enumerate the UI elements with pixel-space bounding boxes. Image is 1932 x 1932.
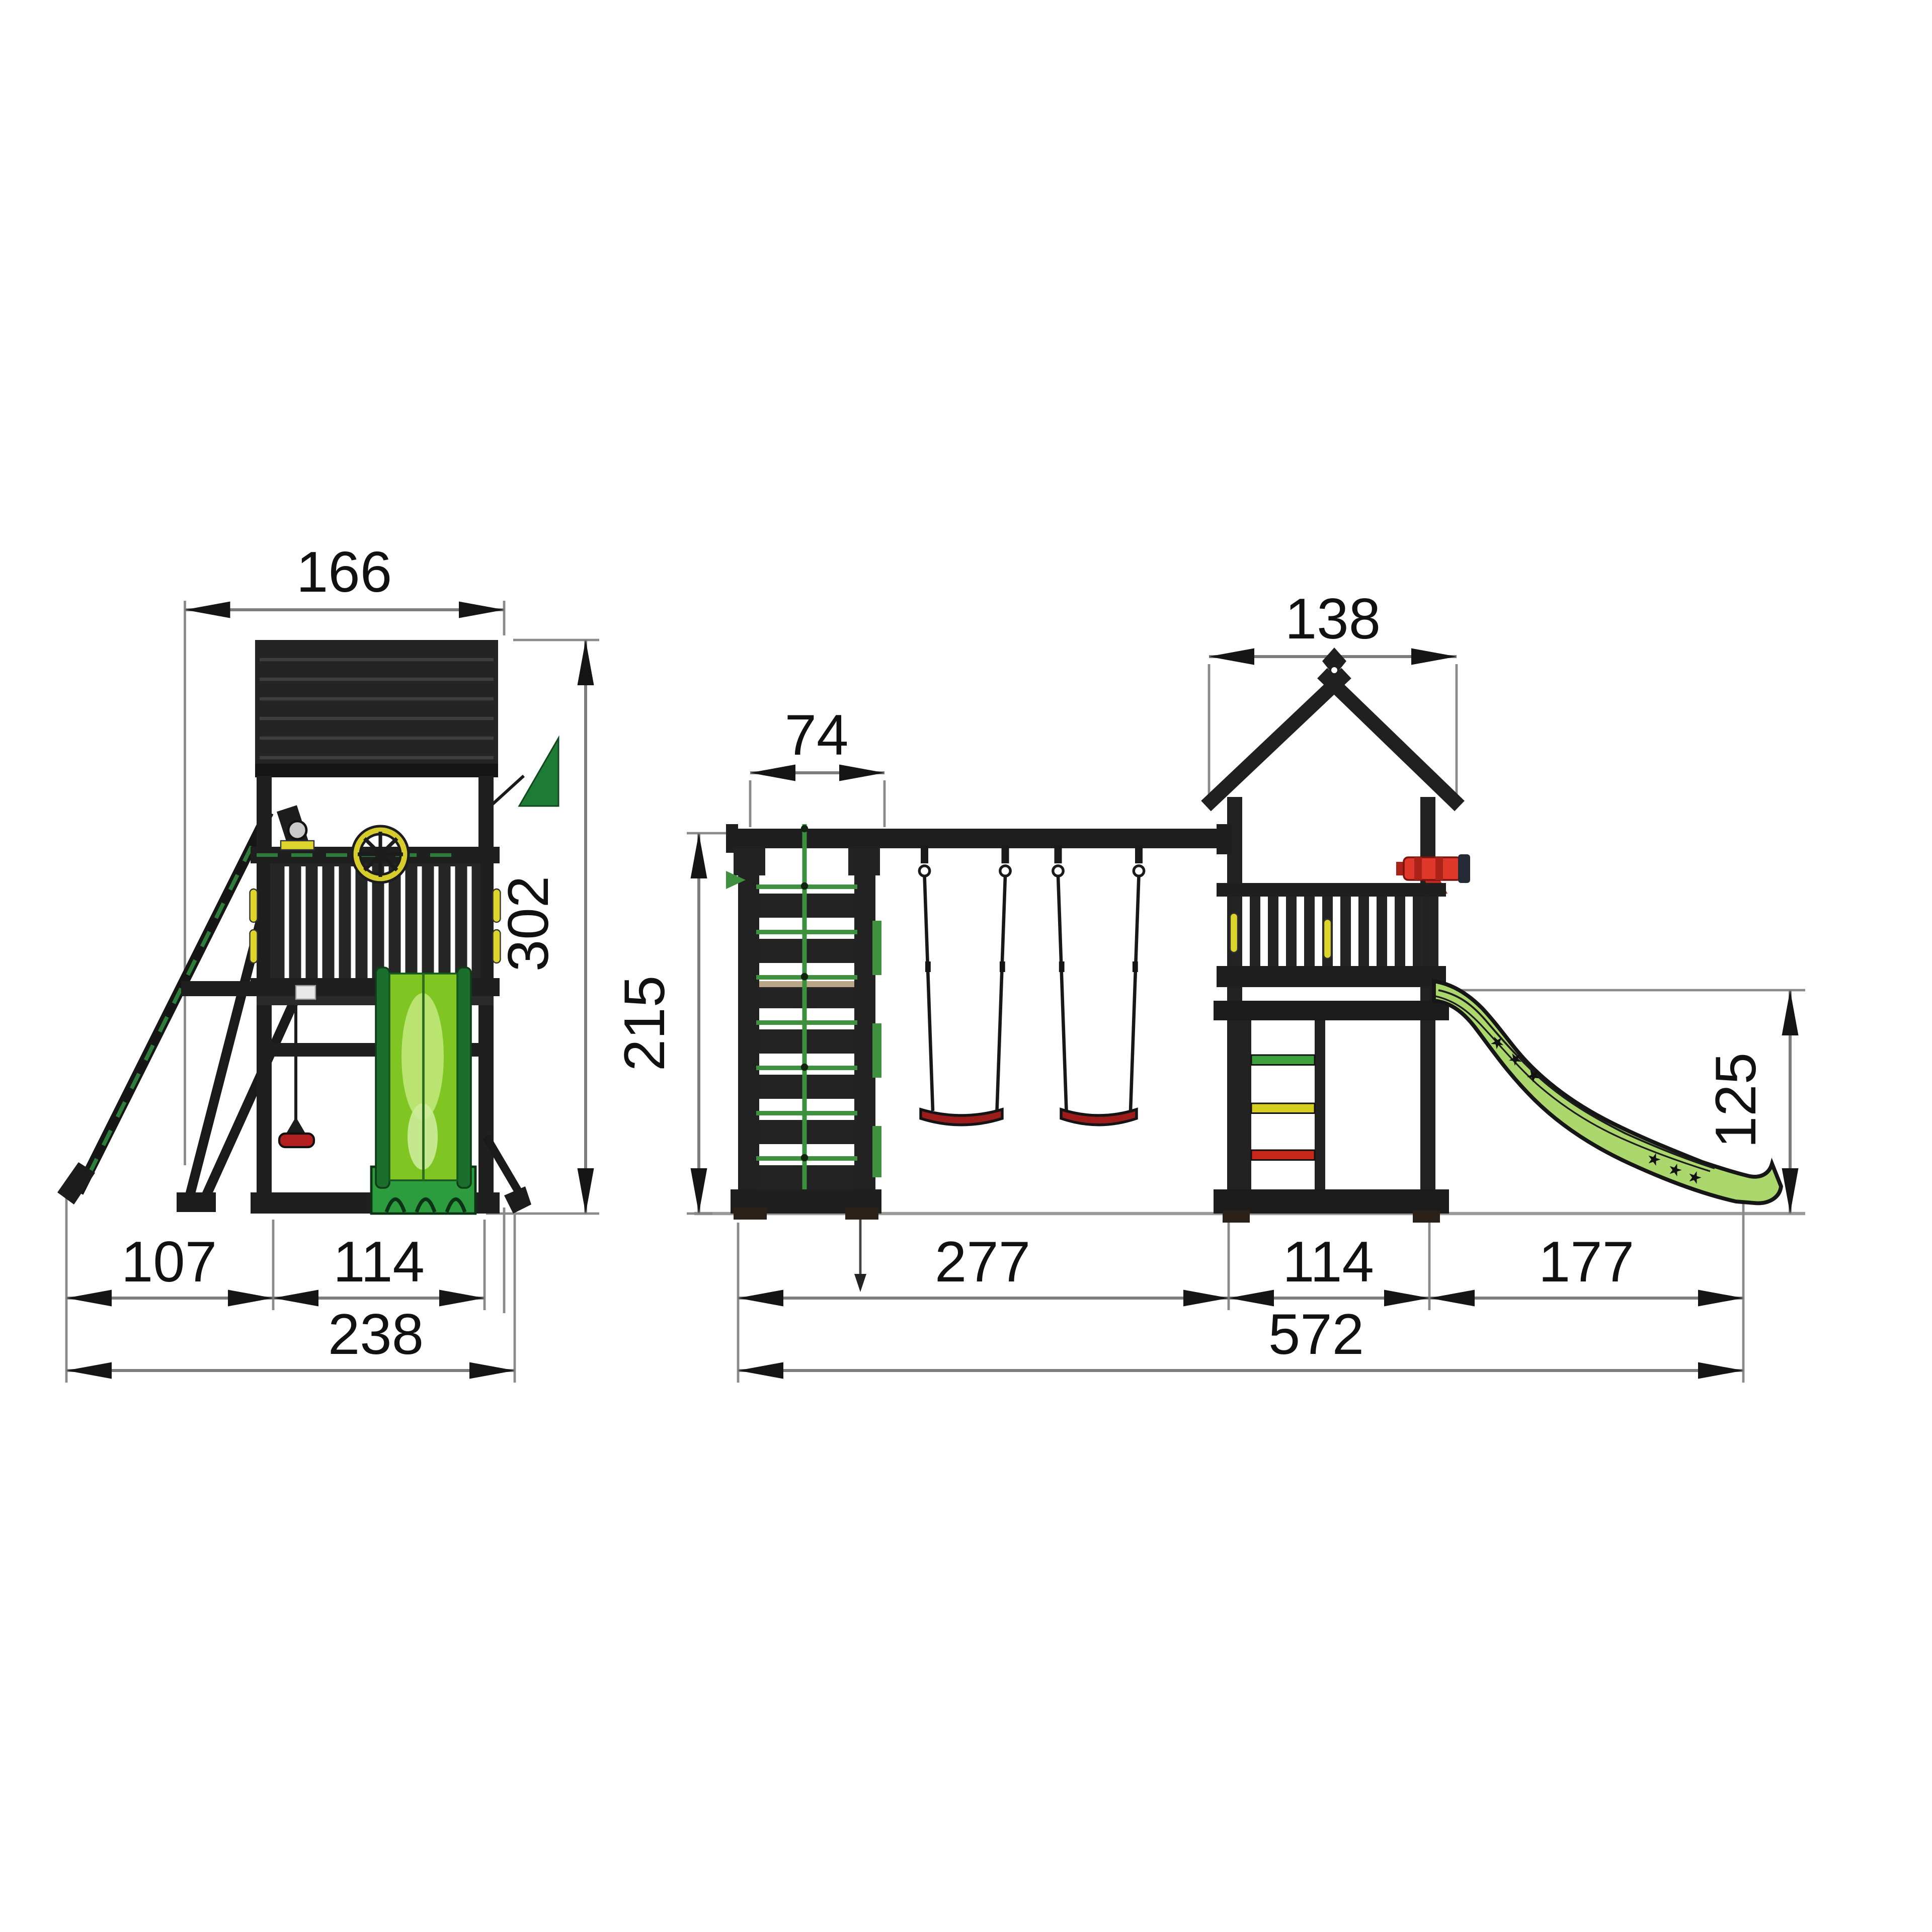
- side-view: 166 302: [57, 540, 599, 1383]
- steering-wheel-icon: [356, 830, 405, 878]
- diagram-canvas: 166 302: [0, 0, 1932, 1932]
- ladder-rung-green: [1251, 1055, 1315, 1065]
- front-dim-frame-width: 74: [750, 703, 884, 781]
- railing-handle: [1324, 919, 1331, 958]
- dim-138: 138: [1285, 587, 1381, 651]
- ladder-rung-red: [1251, 1150, 1315, 1160]
- dim-107: 107: [121, 1230, 217, 1294]
- dim-177: 177: [1539, 1230, 1634, 1294]
- roof-slope-right: [1322, 673, 1460, 806]
- railing-handle: [1230, 913, 1238, 952]
- periscope-icon: [277, 805, 314, 850]
- front-structure: ★ ★ ★ ★ ★ ★: [726, 648, 1781, 1223]
- roof-slope-left: [1206, 673, 1346, 806]
- side-roof: [255, 640, 498, 777]
- dim-572: 572: [1268, 1303, 1364, 1366]
- swing-seat: [1061, 1109, 1137, 1125]
- side-dim-overall-height: 302: [497, 640, 594, 1214]
- side-dim-bottom: 107 114 238: [66, 1230, 515, 1379]
- front-dim-beam-height: 215: [613, 833, 707, 1214]
- dim-125: 125: [1704, 1053, 1768, 1148]
- slide-front: [371, 968, 475, 1214]
- front-tower: [1206, 648, 1470, 1223]
- front-view: 74 215 138 125: [613, 587, 1805, 1383]
- swings: [919, 845, 1144, 1125]
- flag-icon: [491, 738, 558, 806]
- side-right-foot: [504, 1186, 531, 1214]
- dim-215: 215: [613, 976, 677, 1071]
- front-dim-bottom: 277 114 177 572: [738, 1230, 1743, 1379]
- climbing-frame: [726, 824, 881, 1220]
- side-mid-rail: [181, 981, 260, 996]
- dim-302: 302: [497, 876, 560, 972]
- swing-seat: [921, 1109, 1002, 1125]
- dim-277: 277: [935, 1230, 1030, 1294]
- side-dim-roof-depth: 166: [185, 540, 505, 618]
- a-frame-foot: [177, 1192, 216, 1212]
- tower-railing: [1217, 883, 1446, 987]
- tower-base: [1214, 1189, 1449, 1214]
- dim-166: 166: [296, 540, 392, 604]
- tower-ladder: [1241, 1020, 1325, 1189]
- side-structure: [57, 640, 558, 1214]
- climb-hold: [872, 921, 881, 975]
- ladder-rung-yellow: [1251, 1103, 1315, 1113]
- dim-238: 238: [328, 1303, 424, 1366]
- dim-114-front: 114: [1282, 1230, 1374, 1294]
- dim-114-side: 114: [333, 1230, 425, 1294]
- tower-platform-floor: [1214, 1001, 1449, 1020]
- info-label: [296, 986, 315, 999]
- dim-74: 74: [785, 703, 849, 767]
